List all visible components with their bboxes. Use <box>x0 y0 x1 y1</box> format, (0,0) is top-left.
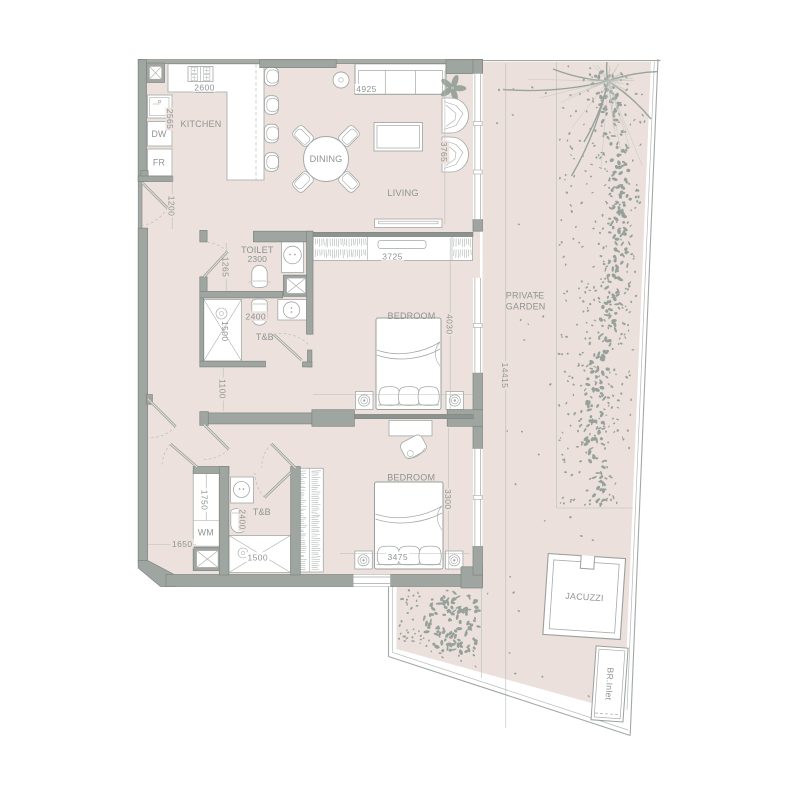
svg-text:PRIVATE: PRIVATE <box>506 291 545 301</box>
svg-text:2400: 2400 <box>238 509 248 530</box>
svg-text:DINING: DINING <box>310 154 343 164</box>
svg-text:2400: 2400 <box>246 312 267 322</box>
svg-text:3725: 3725 <box>382 251 403 261</box>
svg-text:1100: 1100 <box>217 379 227 399</box>
svg-text:3475: 3475 <box>388 552 409 562</box>
svg-text:T&B: T&B <box>253 507 271 517</box>
svg-text:DW: DW <box>151 129 167 139</box>
svg-text:2300: 2300 <box>248 254 268 264</box>
svg-text:BEDROOM: BEDROOM <box>388 311 436 321</box>
svg-text:3300: 3300 <box>443 489 453 510</box>
svg-text:2600: 2600 <box>194 83 215 93</box>
svg-text:FR: FR <box>153 158 165 168</box>
svg-text:1500: 1500 <box>220 321 230 342</box>
svg-text:1265: 1265 <box>220 257 230 278</box>
svg-text:3765: 3765 <box>439 142 449 163</box>
svg-text:1650: 1650 <box>172 539 193 549</box>
svg-text:4030: 4030 <box>444 314 454 335</box>
svg-text:14415: 14415 <box>500 363 510 389</box>
svg-text:2565: 2565 <box>165 109 175 130</box>
svg-text:WM: WM <box>198 528 214 538</box>
svg-text:1500: 1500 <box>247 553 268 563</box>
svg-text:1200: 1200 <box>167 196 177 217</box>
svg-text:1750: 1750 <box>200 490 210 511</box>
svg-text:4925: 4925 <box>356 84 377 94</box>
svg-text:BEDROOM: BEDROOM <box>387 473 435 483</box>
svg-text:T&B: T&B <box>256 332 274 342</box>
svg-text:KITCHEN: KITCHEN <box>181 119 222 129</box>
svg-text:LIVING: LIVING <box>387 187 418 198</box>
svg-text:GARDEN: GARDEN <box>506 302 546 312</box>
